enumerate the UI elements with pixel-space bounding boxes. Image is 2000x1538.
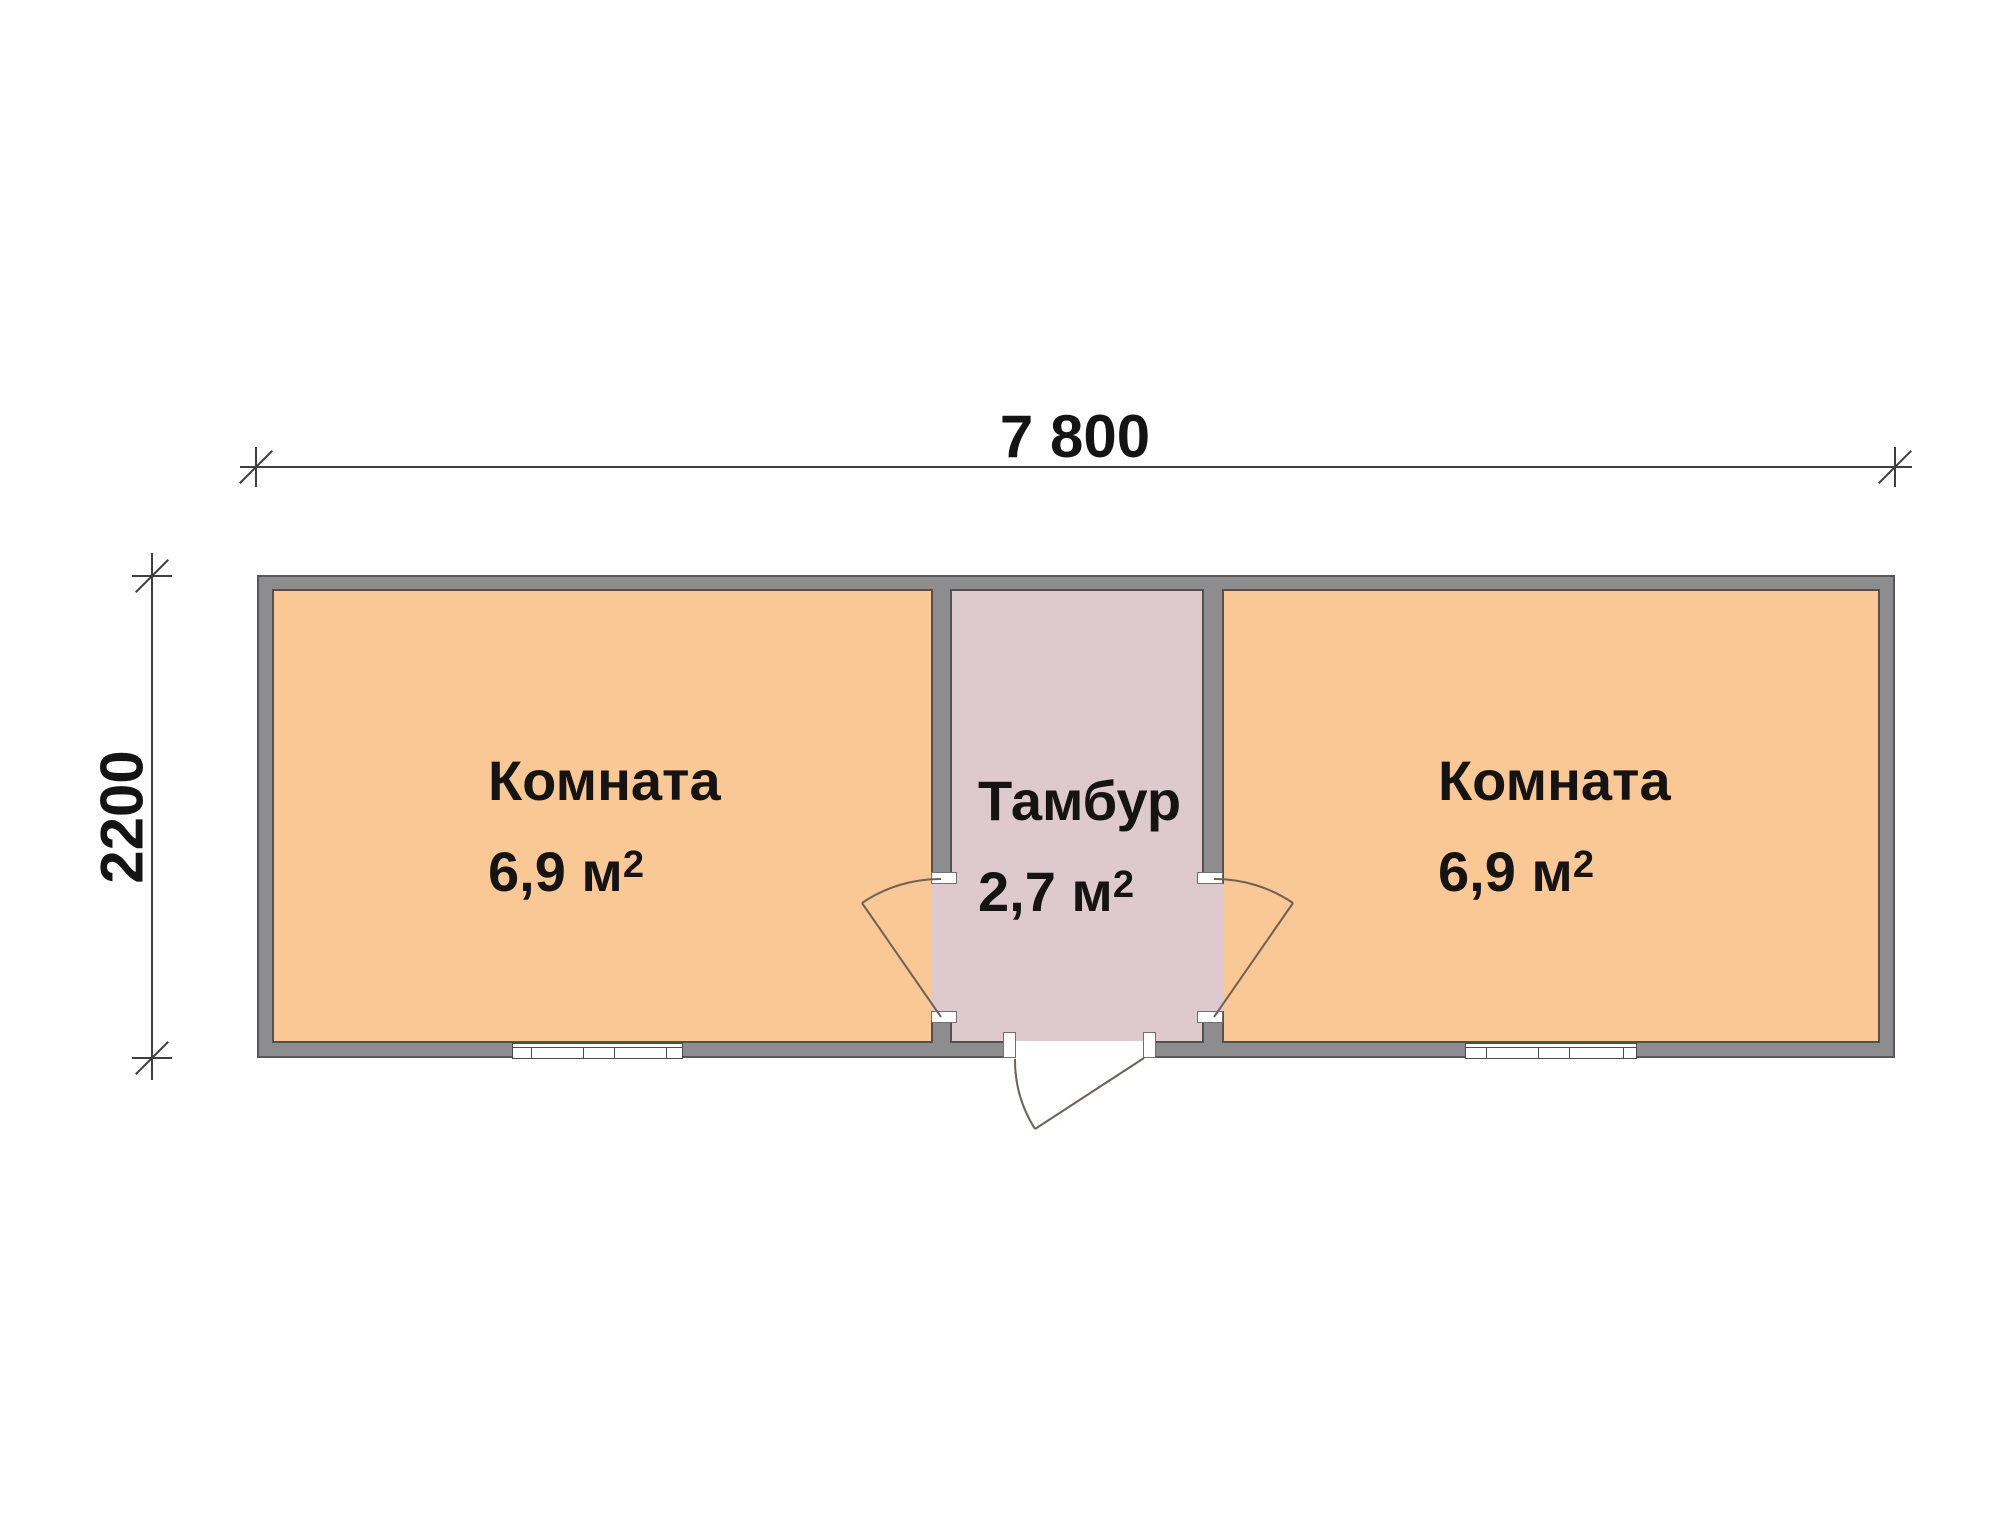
right-room-door-opening xyxy=(1202,884,1224,1011)
vestibule-area: 2,7 м2 xyxy=(978,843,1181,934)
window-mullion xyxy=(583,1047,584,1058)
window-mullion xyxy=(1538,1047,1539,1058)
vestibule-area-superscript: 2 xyxy=(1113,864,1134,906)
vestibule-label: Тамбур 2,7 м2 xyxy=(978,759,1181,934)
entrance-door-swing-arc xyxy=(1015,1059,1035,1129)
window-mullion xyxy=(614,1047,615,1058)
overall-depth-dimension-label: 2200 xyxy=(88,750,157,883)
right-room-name: Комната xyxy=(1438,739,1671,823)
overall-width-dimension-label: 7 800 xyxy=(1000,402,1150,471)
entrance-door-right-jamb xyxy=(1143,1032,1156,1058)
floor-plan-canvas: 7 800 2200 xyxy=(0,0,2000,1538)
window-frame-line xyxy=(513,1047,682,1048)
right-door-bottom-jamb xyxy=(1197,1011,1223,1023)
left-room-area-superscript: 2 xyxy=(623,844,644,886)
right-room-area: 6,9 м2 xyxy=(1438,823,1671,914)
entrance-door-left-jamb xyxy=(1003,1032,1016,1058)
right-room-area-value: 6,9 м xyxy=(1438,840,1573,903)
window-mullion xyxy=(1486,1047,1487,1058)
right-room-label: Комната 6,9 м2 xyxy=(1438,739,1671,914)
vestibule-area-value: 2,7 м xyxy=(978,860,1113,923)
right-room-window xyxy=(1465,1043,1637,1059)
window-mullion xyxy=(1569,1047,1570,1058)
window-mullion xyxy=(1623,1047,1624,1058)
window-mullion xyxy=(531,1047,532,1058)
right-room-area-superscript: 2 xyxy=(1573,844,1594,886)
left-door-bottom-jamb xyxy=(931,1011,957,1023)
entrance-door-opening xyxy=(1016,1041,1143,1058)
right-door-top-jamb xyxy=(1197,872,1223,884)
vestibule-name: Тамбур xyxy=(978,759,1181,843)
left-door-top-jamb xyxy=(931,872,957,884)
left-room-label: Комната 6,9 м2 xyxy=(488,739,721,914)
left-room-door-opening xyxy=(931,884,952,1011)
left-room-area: 6,9 м2 xyxy=(488,823,721,914)
entrance-door-leaf xyxy=(1035,1058,1144,1129)
left-room-area-value: 6,9 м xyxy=(488,840,623,903)
left-room-window xyxy=(512,1043,683,1059)
left-room-name: Комната xyxy=(488,739,721,823)
window-frame-line xyxy=(1466,1047,1636,1048)
window-mullion xyxy=(666,1047,667,1058)
